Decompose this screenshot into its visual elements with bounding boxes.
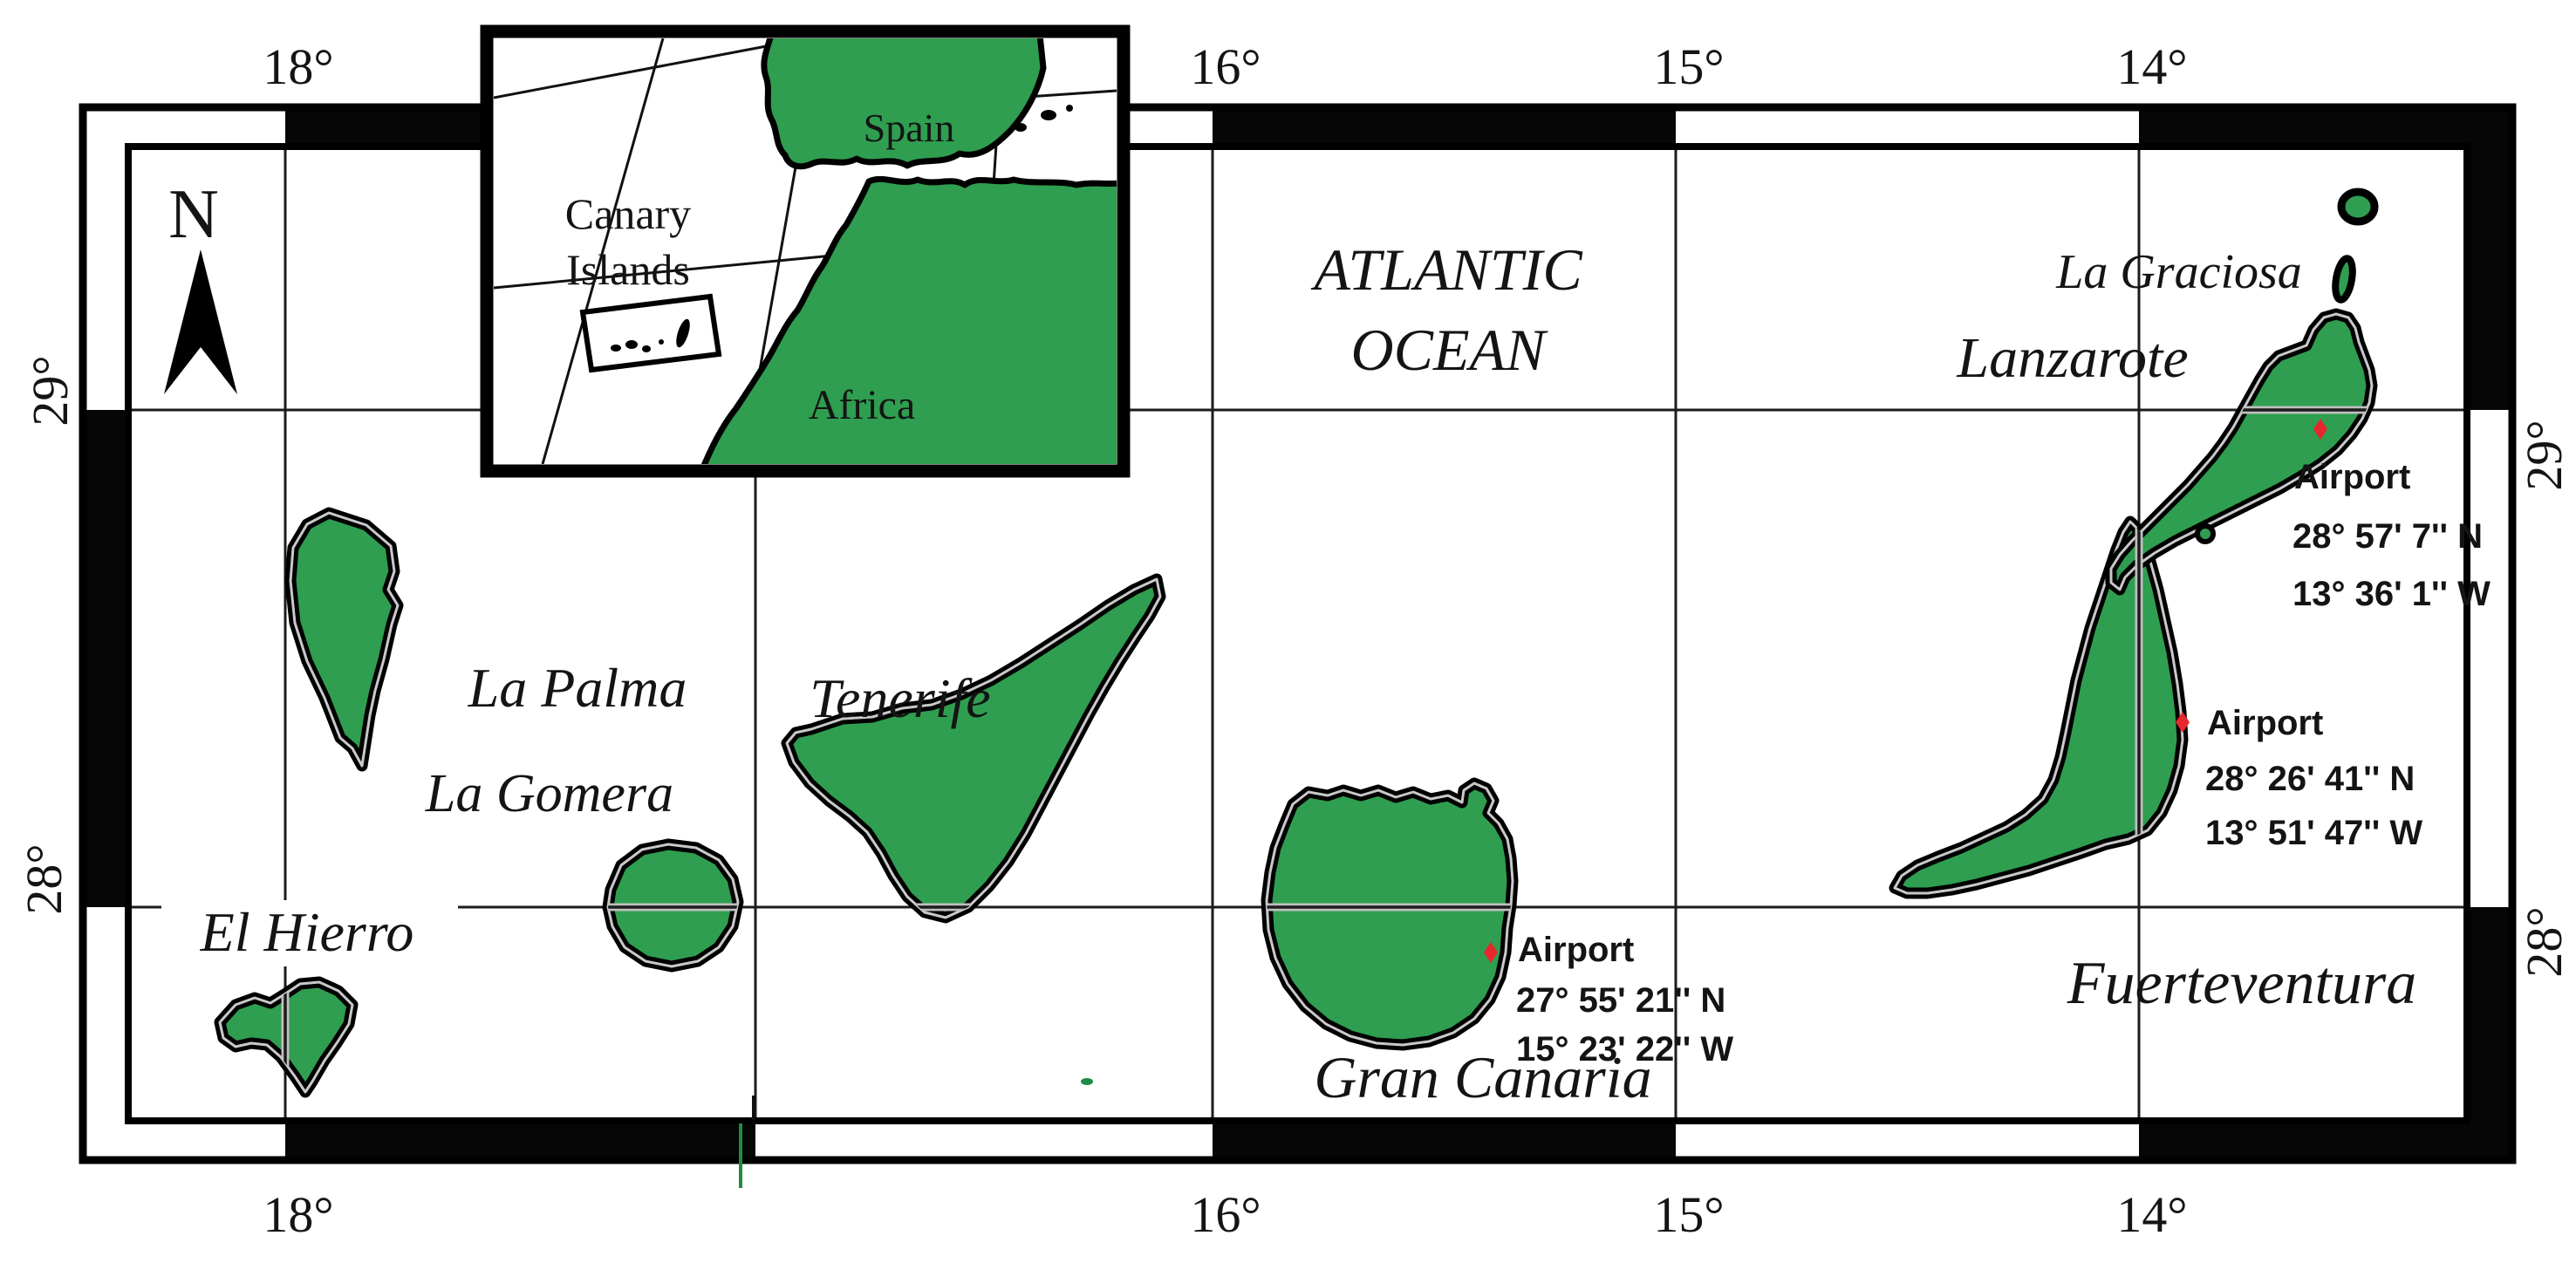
airport-lat: 28° 26' 41'' N — [2205, 760, 2415, 798]
inset-label-islands: Islands — [566, 245, 690, 294]
inset-label-africa: Africa — [809, 382, 916, 428]
axis-bottom-14: 14° — [2116, 1186, 2187, 1243]
label-el-hierro: El Hierro — [200, 901, 414, 963]
label-la-palma: La Palma — [468, 657, 687, 719]
map-figure: N ATLANTIC OCEAN La Palma La Gomera El H… — [0, 0, 2576, 1263]
axis-top-15: 15° — [1653, 38, 1724, 95]
inset-label-spain: Spain — [864, 106, 955, 150]
airport-name: Airport — [2294, 458, 2410, 496]
axis-top-16: 16° — [1190, 38, 1261, 95]
band-top-segment — [1213, 107, 1676, 147]
axis-bottom-15: 15° — [1653, 1186, 1724, 1243]
airport-name: Airport — [2207, 704, 2323, 742]
islet-alegranza — [2341, 192, 2374, 222]
airport-name: Airport — [1518, 931, 1634, 969]
airport-lon: 15° 23' 22'' W — [1516, 1030, 1733, 1068]
axis-left-29: 29° — [22, 355, 79, 426]
band-top-segment — [2139, 107, 2512, 147]
axis-right-29: 29° — [2516, 420, 2573, 490]
label-la-graciosa: La Graciosa — [2055, 245, 2302, 299]
band-bottom-segment — [285, 1121, 755, 1160]
band-bottom-segment — [2139, 1121, 2512, 1160]
band-right-segment — [2467, 107, 2512, 410]
airport-lon: 13° 51' 47'' W — [2205, 814, 2422, 852]
label-lanzarote: Lanzarote — [1956, 326, 2188, 390]
canary-islands-map: N ATLANTIC OCEAN La Palma La Gomera El H… — [0, 0, 2576, 1263]
label-tenerife: Tenerife — [810, 667, 990, 729]
axis-top-18: 18° — [263, 38, 333, 95]
label-fuerteventura: Fuerteventura — [2067, 950, 2416, 1017]
ocean-label-line2: OCEAN — [1351, 317, 1549, 383]
airport-lat: 28° 57' 7'' N — [2292, 517, 2483, 556]
ocean-label-line1: ATLANTIC — [1310, 236, 1582, 303]
inset-canary-locator-box — [583, 297, 719, 370]
axis-left-28: 28° — [16, 843, 72, 914]
label-la-gomera: La Gomera — [425, 764, 673, 823]
axis-right-28: 28° — [2516, 906, 2573, 977]
band-right-segment — [2467, 907, 2512, 1160]
inset-label-canary: Canary — [565, 189, 691, 238]
band-left-segment — [83, 410, 128, 907]
axis-bottom-16: 16° — [1190, 1186, 1261, 1243]
islet-lobos — [2197, 526, 2213, 542]
green-speck-artifact — [1081, 1078, 1093, 1085]
axis-top-14: 14° — [2116, 38, 2187, 95]
island-gran-canaria — [1267, 783, 1513, 1045]
axis-bottom-18: 18° — [263, 1186, 333, 1243]
airport-lon: 13° 36' 1'' W — [2292, 575, 2491, 613]
band-bottom-segment — [1213, 1121, 1676, 1160]
inset-map: Canary Islands Spain Africa — [487, 31, 1124, 471]
north-letter: N — [168, 176, 219, 253]
airport-lat: 27° 55' 21'' N — [1516, 981, 1725, 1020]
